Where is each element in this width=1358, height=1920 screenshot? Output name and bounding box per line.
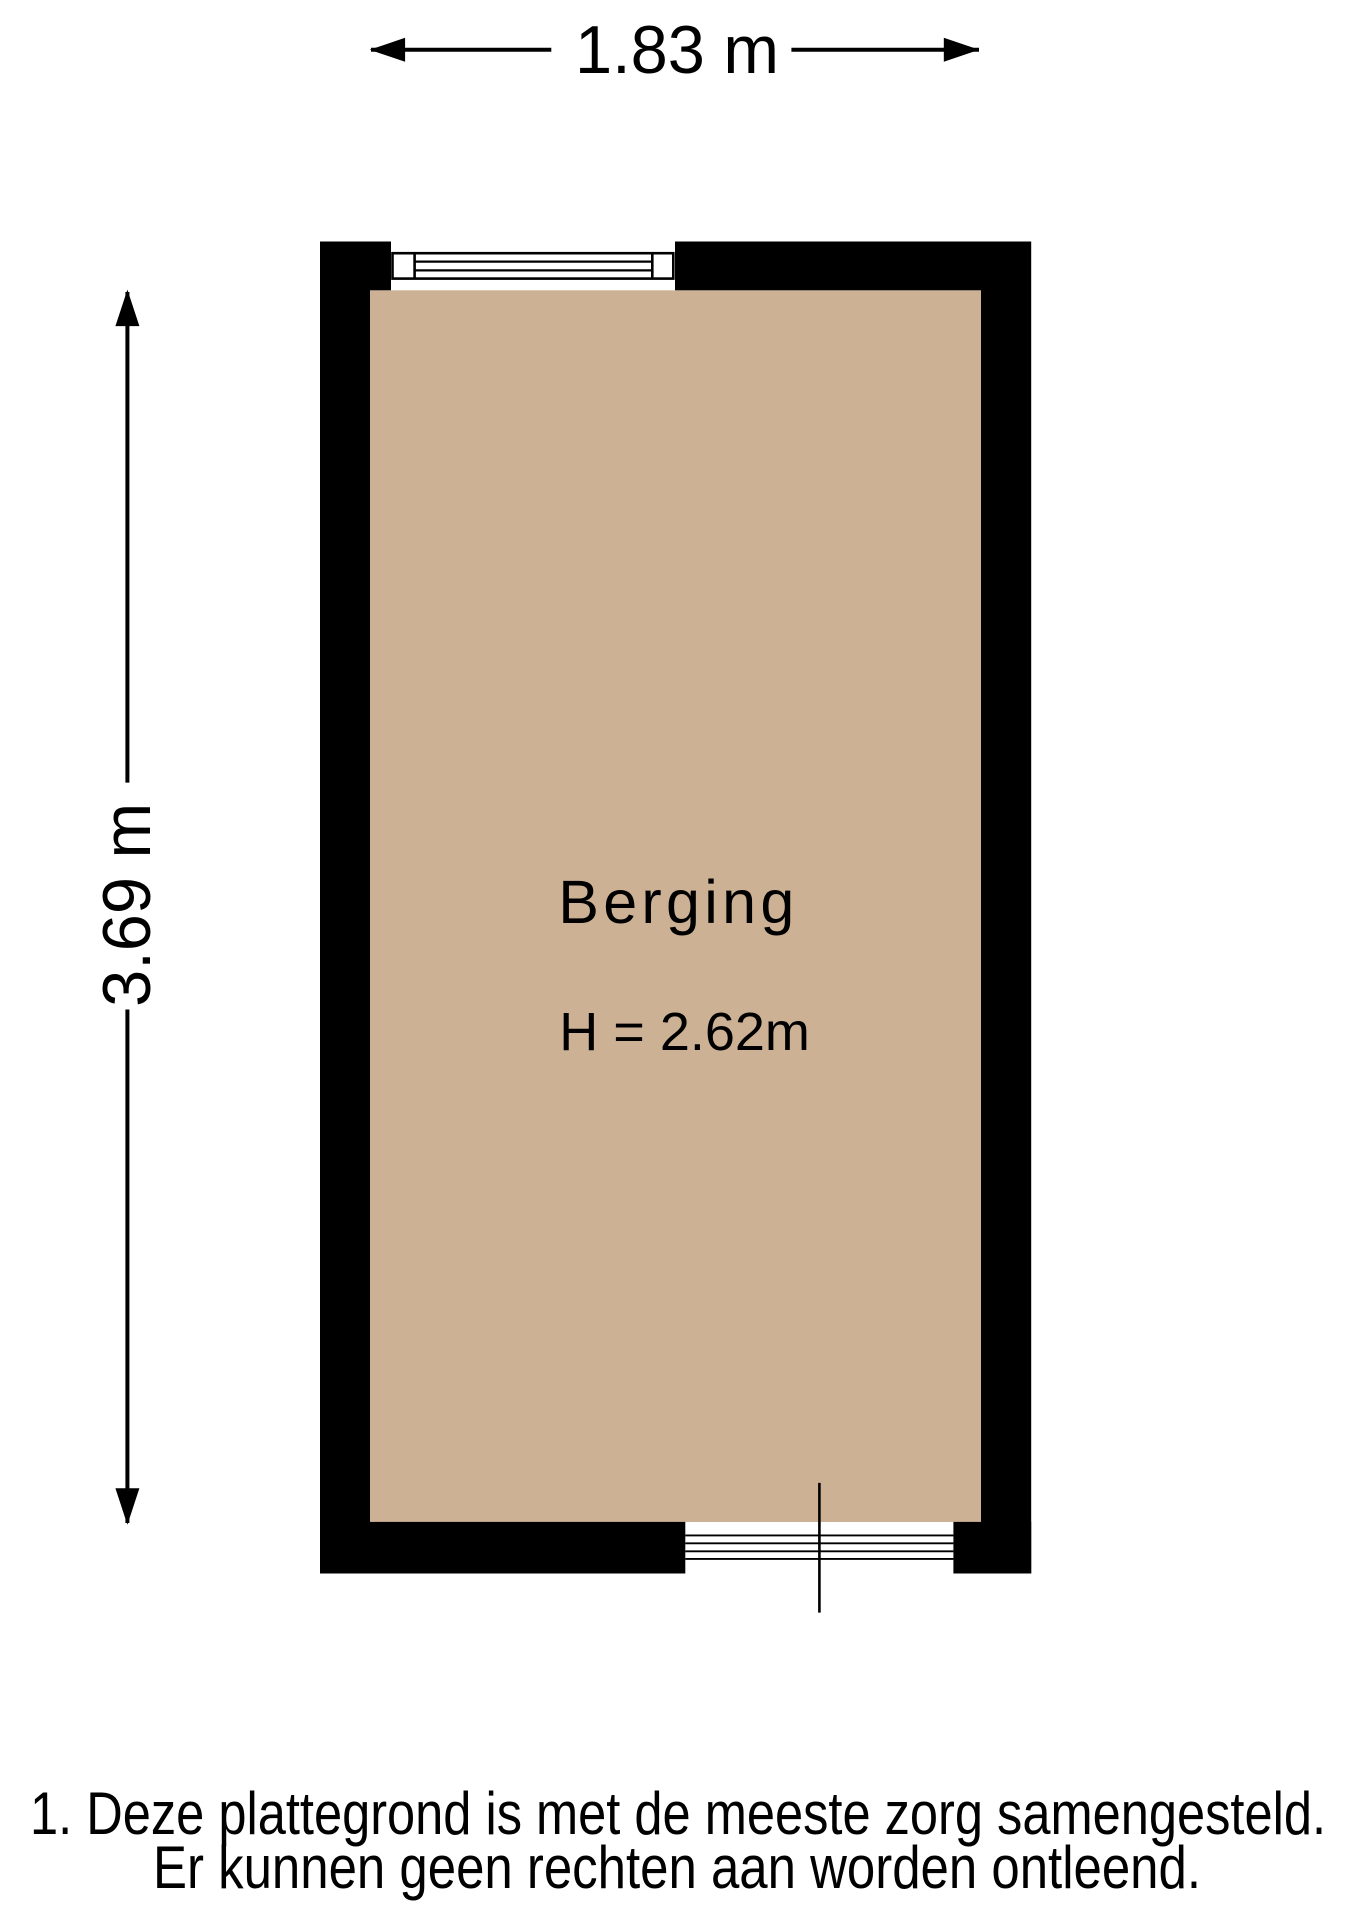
svg-text:1.83 m: 1.83 m bbox=[575, 12, 779, 88]
svg-text:Berging: Berging bbox=[558, 868, 798, 936]
svg-text:Er kunnen geen rechten aan wor: Er kunnen geen rechten aan worden ontlee… bbox=[153, 1834, 1201, 1901]
svg-text:H = 2.62m: H = 2.62m bbox=[559, 1002, 810, 1062]
svg-text:3.69 m: 3.69 m bbox=[89, 803, 165, 1007]
